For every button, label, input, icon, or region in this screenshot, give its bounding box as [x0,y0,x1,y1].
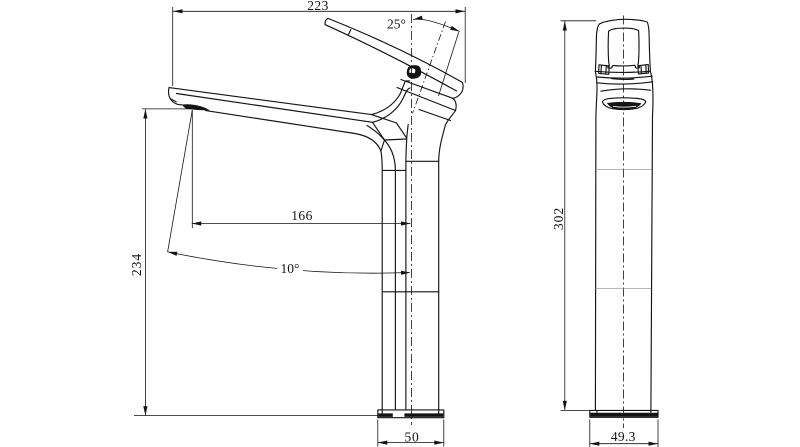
svg-text:10°: 10° [281,261,300,276]
svg-text:166: 166 [291,208,312,223]
svg-text:49.3: 49.3 [611,429,636,444]
svg-text:234: 234 [129,253,144,276]
svg-text:302: 302 [551,207,566,230]
svg-text:25°: 25° [387,17,406,32]
svg-text:50: 50 [404,430,419,445]
svg-text:223: 223 [307,0,328,13]
